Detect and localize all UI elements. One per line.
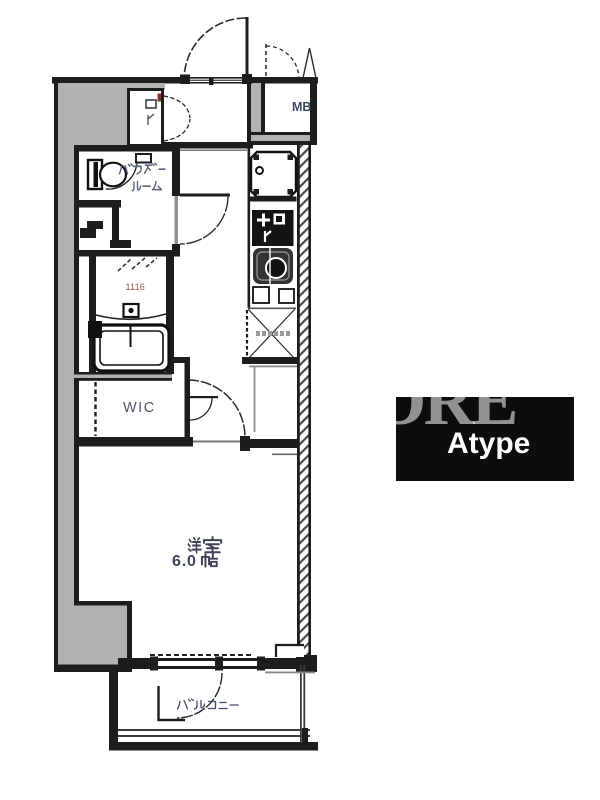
svg-text:Atype: Atype: [447, 427, 530, 460]
svg-text:MB: MB: [292, 100, 311, 114]
svg-text:6.0: 6.0: [172, 553, 197, 570]
svg-text:1116: 1116: [126, 282, 146, 292]
svg-text:WIC: WIC: [123, 400, 156, 416]
